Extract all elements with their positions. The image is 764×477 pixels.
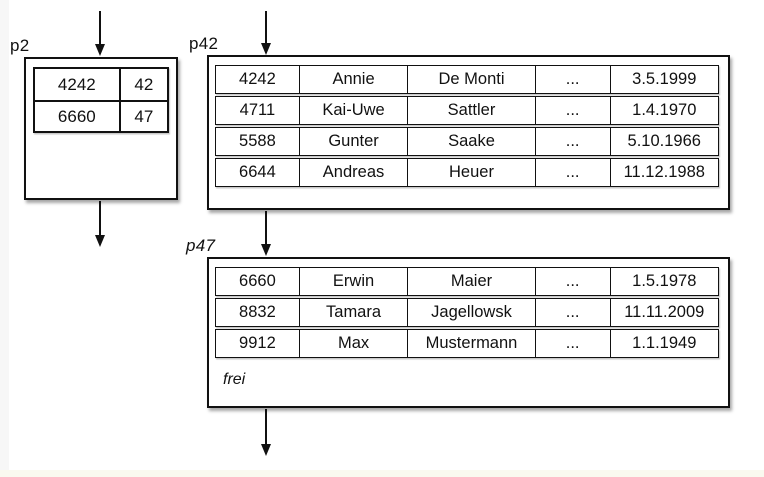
- arrow-into-p42: [265, 11, 267, 43]
- cell-lastname: Jagellowsk: [407, 299, 535, 326]
- arrow-head: [261, 444, 271, 456]
- cell-firstname: Kai-Uwe: [299, 97, 407, 124]
- cell-ellipsis: ...: [535, 97, 610, 124]
- arrow-head: [95, 44, 105, 56]
- cell-key: 4242: [35, 69, 119, 100]
- cell-lastname: Sattler: [407, 97, 535, 124]
- cell-birthdate: 5.10.1966: [610, 128, 718, 155]
- cell-ellipsis: ...: [535, 268, 610, 295]
- cell-id: 4711: [216, 97, 299, 124]
- cell-ellipsis: ...: [535, 128, 610, 155]
- cell-lastname: Heuer: [407, 159, 535, 186]
- table-row: 4242 42: [35, 69, 167, 100]
- cell-id: 4242: [216, 66, 299, 93]
- cell-birthdate: 11.11.2009: [610, 299, 718, 326]
- table-row: 6644 Andreas Heuer ... 11.12.1988: [215, 158, 719, 187]
- cell-lastname: Mustermann: [407, 330, 535, 357]
- cell-ellipsis: ...: [535, 330, 610, 357]
- cell-firstname: Erwin: [299, 268, 407, 295]
- table-row: 4242 Annie De Monti ... 3.5.1999: [215, 65, 719, 94]
- arrow-into-p2: [99, 11, 101, 44]
- cell-id: 9912: [216, 330, 299, 357]
- page-label-p47: p47: [186, 236, 215, 256]
- cell-lastname: De Monti: [407, 66, 535, 93]
- cell-id: 6644: [216, 159, 299, 186]
- cell-birthdate: 1.1.1949: [610, 330, 718, 357]
- arrow-head: [261, 244, 271, 256]
- arrow-p42-to-p47: [265, 211, 267, 244]
- cell-id: 5588: [216, 128, 299, 155]
- diagram-canvas: p2 4242 42 6660 47 p42 4242 Annie De Mon…: [0, 0, 764, 477]
- page-label-p2: p2: [10, 36, 30, 56]
- table-row: 6660 Erwin Maier ... 1.5.1978: [215, 267, 719, 296]
- page-box-p47: 6660 Erwin Maier ... 1.5.1978 8832 Tamar…: [207, 257, 730, 408]
- table-row: 4711 Kai-Uwe Sattler ... 1.4.1970: [215, 96, 719, 125]
- table-row: 8832 Tamara Jagellowsk ... 11.11.2009: [215, 298, 719, 327]
- cell-firstname: Gunter: [299, 128, 407, 155]
- table-row: 5588 Gunter Saake ... 5.10.1966: [215, 127, 719, 156]
- cell-birthdate: 1.5.1978: [610, 268, 718, 295]
- cell-birthdate: 1.4.1970: [610, 97, 718, 124]
- cell-id: 6660: [216, 268, 299, 295]
- arrow-out-of-p2: [99, 201, 101, 235]
- left-edge-strip: [0, 0, 9, 477]
- table-row: 6660 47: [35, 100, 167, 131]
- cell-firstname: Tamara: [299, 299, 407, 326]
- cell-firstname: Andreas: [299, 159, 407, 186]
- cell-ellipsis: ...: [535, 299, 610, 326]
- cell-ellipsis: ...: [535, 66, 610, 93]
- cell-key: 6660: [35, 102, 119, 131]
- cell-birthdate: 11.12.1988: [610, 159, 718, 186]
- arrow-head: [95, 235, 105, 247]
- page-label-p42: p42: [189, 34, 218, 54]
- cell-firstname: Max: [299, 330, 407, 357]
- arrow-head: [261, 43, 271, 55]
- cell-birthdate: 3.5.1999: [610, 66, 718, 93]
- cell-firstname: Annie: [299, 66, 407, 93]
- cell-page-ref: 47: [119, 102, 167, 131]
- arrow-out-of-p47: [265, 409, 267, 444]
- p2-entry-table: 4242 42 6660 47: [33, 67, 169, 133]
- page-box-p42: 4242 Annie De Monti ... 3.5.1999 4711 Ka…: [207, 55, 730, 210]
- page-box-p2: 4242 42 6660 47: [24, 57, 178, 200]
- cell-lastname: Saake: [407, 128, 535, 155]
- table-row: 9912 Max Mustermann ... 1.1.1949: [215, 329, 719, 358]
- cell-id: 8832: [216, 299, 299, 326]
- cell-page-ref: 42: [119, 69, 167, 100]
- bottom-edge-strip: [0, 470, 764, 477]
- p42-record-table: 4242 Annie De Monti ... 3.5.1999 4711 Ka…: [215, 65, 719, 189]
- free-space-label: frei: [223, 371, 245, 389]
- cell-ellipsis: ...: [535, 159, 610, 186]
- cell-lastname: Maier: [407, 268, 535, 295]
- p47-record-table: 6660 Erwin Maier ... 1.5.1978 8832 Tamar…: [215, 267, 719, 360]
